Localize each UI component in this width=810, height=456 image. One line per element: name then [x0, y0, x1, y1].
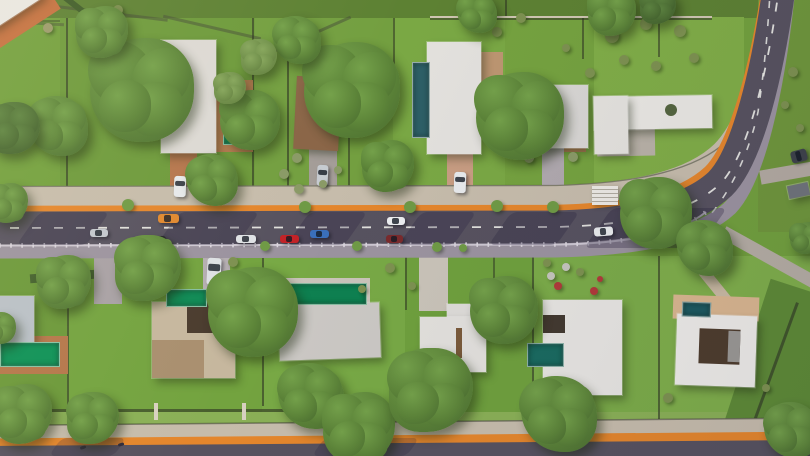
bush-24	[260, 241, 270, 251]
main-road-sidewalk-top	[0, 0, 780, 197]
car-right-side-windshield	[795, 151, 803, 162]
car-road-white-1	[387, 217, 405, 225]
car-road-orange	[158, 214, 179, 223]
bush-30	[408, 282, 416, 290]
car-parked-i	[206, 258, 221, 286]
bush-41	[543, 259, 551, 267]
car-road-blue-windshield	[316, 231, 322, 237]
flower-bush-1	[554, 282, 562, 290]
bush-17	[568, 152, 578, 162]
aerial-neighborhood-render	[0, 0, 810, 456]
car-road-black-windshield	[151, 237, 158, 243]
bush-34	[43, 23, 53, 33]
car-driveway-b-windshield	[318, 169, 327, 175]
road-shadow-7	[312, 438, 420, 456]
car-road-white-2-windshield	[599, 228, 606, 235]
car-road-orange-windshield	[164, 215, 171, 222]
bush-9	[492, 27, 502, 37]
car-driveway-a-windshield	[175, 180, 185, 186]
car-parked-i-windshield	[208, 264, 220, 272]
car-road-white-2	[594, 226, 614, 236]
bush-5	[651, 61, 661, 71]
bush-18	[122, 199, 134, 211]
bush-16	[524, 153, 534, 163]
flower-bush-2	[590, 287, 598, 295]
bush-31	[788, 67, 798, 77]
bush-26	[432, 242, 442, 252]
bush-6	[689, 53, 699, 63]
bottom-road-sidewalk	[0, 425, 810, 433]
bush-13	[294, 184, 304, 194]
bush-28	[385, 263, 395, 273]
bush-25	[352, 241, 362, 251]
bush-35	[113, 5, 123, 15]
bush-4	[619, 55, 629, 65]
car-road-white-3	[236, 235, 256, 243]
bush-37	[462, 16, 470, 24]
bush-2	[640, 18, 652, 30]
car-driveway-d	[454, 172, 467, 193]
car-road-white-1-windshield	[392, 218, 398, 224]
bush-20	[404, 201, 416, 213]
bush-10	[516, 13, 526, 23]
steps-house-f	[592, 186, 618, 205]
bush-33	[796, 124, 804, 132]
car-driveway-a	[174, 176, 187, 197]
bush-11	[292, 153, 302, 163]
bush-22	[547, 201, 559, 213]
bush-19	[299, 201, 311, 213]
car-road-red	[280, 235, 299, 243]
bush-3	[674, 25, 686, 37]
flower-bush-5	[547, 272, 555, 280]
bush-8	[562, 44, 570, 52]
car-road-darkred-windshield	[391, 236, 397, 242]
flower-bush-3	[597, 276, 603, 282]
bush-1	[605, 29, 619, 43]
bush-23	[162, 239, 172, 249]
bush-21	[491, 200, 503, 212]
car-road-blue	[310, 230, 329, 238]
car-road-red-windshield	[286, 236, 292, 242]
flower-bush-4	[562, 263, 570, 271]
car-road-silver-windshield	[95, 230, 101, 236]
car-road-darkred	[386, 235, 403, 243]
main-road-sidewalk-edge	[0, 141, 727, 187]
bush-7	[585, 68, 595, 78]
bush-15	[334, 166, 342, 174]
bush-12	[279, 169, 289, 179]
bush-14	[319, 180, 327, 188]
car-road-white-3-windshield	[242, 236, 249, 242]
bush-40	[762, 384, 770, 392]
bush-32	[781, 101, 789, 109]
bush-42	[576, 268, 584, 276]
bush-36	[91, 51, 99, 59]
bush-29	[358, 285, 366, 293]
car-driveway-d-windshield	[455, 176, 465, 182]
car-road-silver	[90, 229, 108, 237]
bush-27	[459, 244, 467, 252]
bush-39	[663, 393, 673, 403]
bush-38	[228, 257, 238, 267]
